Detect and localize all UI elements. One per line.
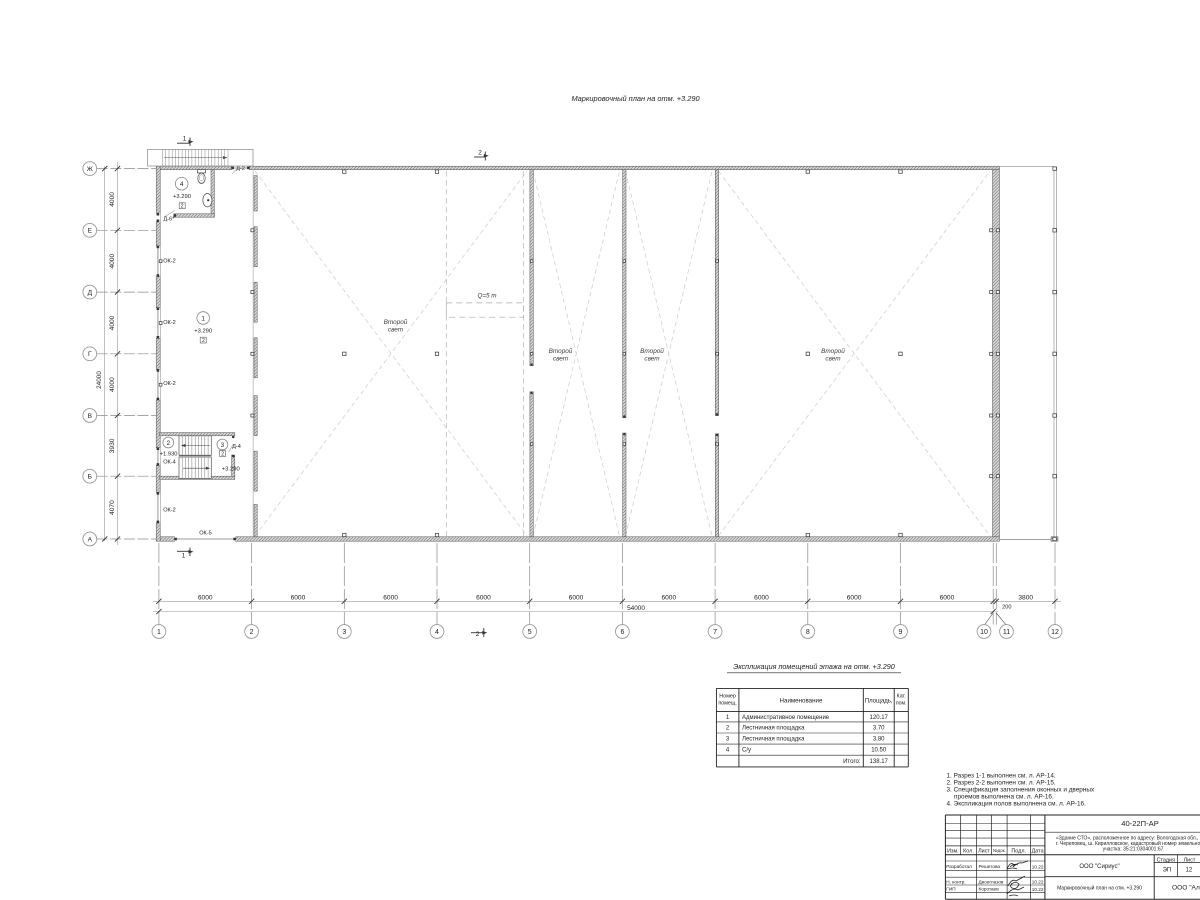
svg-text:ОК-2: ОК-2 [163, 381, 176, 387]
svg-text:2: 2 [221, 452, 224, 458]
svg-text:3: 3 [221, 442, 225, 449]
svg-text:Г: Г [88, 351, 92, 358]
svg-text:12: 12 [1186, 868, 1193, 874]
svg-text:Кол.: Кол. [963, 848, 974, 854]
svg-text:6000: 6000 [940, 595, 955, 602]
svg-text:4000: 4000 [109, 377, 116, 392]
svg-text:6000: 6000 [476, 595, 491, 602]
svg-text:Ж: Ж [87, 166, 93, 173]
svg-text:Второй: Второй [640, 347, 664, 355]
svg-text:ЭП: ЭП [1163, 868, 1172, 874]
svg-text:9: 9 [899, 629, 903, 636]
svg-text:Д-6*: Д-6* [164, 217, 176, 223]
svg-text:Административное помещение: Административное помещение [742, 715, 830, 721]
svg-text:Номер: Номер [719, 694, 736, 700]
svg-text:6000: 6000 [198, 595, 213, 602]
svg-text:4: 4 [435, 629, 439, 636]
svg-text:7: 7 [713, 629, 717, 636]
svg-text:4000: 4000 [109, 192, 116, 207]
svg-text:Экспликация помещений этажа на: Экспликация помещений этажа на отм. +3.2… [733, 662, 895, 671]
svg-text:6000: 6000 [291, 595, 306, 602]
svg-text:Д-4: Д-4 [232, 444, 241, 450]
svg-text:№док.: №док. [993, 848, 1006, 853]
svg-text:2. Разрез 2-2 выполнен см. л.: 2. Разрез 2-2 выполнен см. л. АР-15. [947, 780, 1056, 787]
svg-text:6000: 6000 [569, 595, 584, 602]
svg-text:4. Экспликация полов выполнена: 4. Экспликация полов выполнена см. л. АР… [947, 801, 1087, 808]
svg-text:Д-2: Д-2 [236, 166, 245, 172]
svg-text:ОК-2: ОК-2 [163, 258, 176, 264]
svg-text:3: 3 [342, 629, 346, 636]
svg-text:свет: свет [553, 356, 569, 363]
svg-text:138.17: 138.17 [870, 759, 889, 765]
svg-text:Лист: Лист [1184, 857, 1196, 863]
svg-text:Кат.: Кат. [897, 694, 906, 700]
svg-text:Д: Д [88, 289, 93, 296]
svg-text:свет: свет [825, 356, 841, 363]
svg-text:3.70: 3.70 [873, 726, 885, 732]
svg-text:Второй: Второй [549, 347, 573, 355]
svg-text:В: В [88, 413, 93, 420]
svg-text:12: 12 [1051, 629, 1059, 636]
svg-text:24000: 24000 [96, 371, 103, 389]
svg-text:ГИП: ГИП [946, 887, 955, 892]
svg-text:6: 6 [620, 629, 624, 636]
svg-text:Лестничная площадка: Лестничная площадка [742, 726, 805, 732]
svg-text:Q=5 т: Q=5 т [477, 292, 496, 299]
svg-text:ОК-4: ОК-4 [163, 460, 176, 466]
svg-text:10.50: 10.50 [871, 748, 887, 754]
svg-text:+3.290: +3.290 [194, 329, 212, 335]
svg-text:2: 2 [181, 204, 184, 210]
svg-text:участка: 35:21:0304001:67: участка: 35:21:0304001:67 [1103, 847, 1164, 853]
svg-text:Второй: Второй [821, 347, 845, 355]
svg-text:10.22: 10.22 [1032, 880, 1044, 885]
svg-text:пом.: пом. [896, 701, 907, 707]
svg-text:10: 10 [980, 629, 988, 636]
svg-text:ОК-2: ОК-2 [163, 508, 176, 514]
svg-text:3800: 3800 [1018, 595, 1033, 602]
svg-text:Разработал: Разработал [946, 864, 972, 869]
svg-text:Наименование: Наименование [780, 697, 823, 704]
svg-text:2: 2 [478, 150, 482, 157]
svg-text:ООО "Сириус": ООО "Сириус" [1079, 864, 1119, 870]
svg-text:+3.290: +3.290 [222, 466, 240, 472]
svg-text:Изм.: Изм. [947, 848, 959, 854]
svg-text:Второй: Второй [384, 318, 408, 326]
svg-text:40-22П-АР: 40-22П-АР [1121, 819, 1159, 828]
svg-text:2: 2 [250, 629, 254, 636]
svg-text:Маркировочный план на отм. +3.: Маркировочный план на отм. +3.290 [571, 94, 700, 103]
svg-text:Лист: Лист [978, 848, 990, 854]
svg-text:А: А [88, 536, 93, 543]
svg-text:1. Разрез 1-1 выполнен см. л.: 1. Разрез 1-1 выполнен см. л. АР-14. [947, 773, 1056, 780]
svg-text:2: 2 [202, 338, 205, 344]
svg-text:2: 2 [476, 631, 480, 638]
svg-text:3. Спецификация заполнения око: 3. Спецификация заполнения оконных и две… [947, 787, 1095, 794]
svg-text:3.80: 3.80 [873, 737, 885, 743]
svg-text:4070: 4070 [109, 500, 116, 515]
svg-text:200: 200 [1002, 604, 1011, 610]
svg-text:Стадия: Стадия [1157, 857, 1175, 863]
svg-text:проемов выполнена см. л. АР-16: проемов выполнена см. л. АР-16. [954, 794, 1054, 801]
svg-text:ООО "Альянс": ООО "Альянс" [1172, 885, 1200, 892]
svg-text:10.22: 10.22 [1032, 887, 1044, 892]
svg-text:120.17: 120.17 [870, 715, 889, 721]
svg-text:2: 2 [167, 440, 171, 447]
svg-text:ОК-2: ОК-2 [163, 320, 176, 326]
svg-text:1: 1 [157, 629, 161, 636]
svg-text:54000: 54000 [627, 605, 645, 612]
svg-text:Коротаев: Коротаев [979, 887, 1000, 892]
svg-text:1: 1 [182, 553, 186, 560]
svg-text:3930: 3930 [109, 438, 116, 453]
svg-text:свет: свет [644, 356, 660, 363]
svg-text:Н. контр.: Н. контр. [946, 879, 965, 884]
svg-text:4000: 4000 [109, 254, 116, 269]
svg-text:Б: Б [88, 474, 92, 481]
svg-text:6000: 6000 [754, 595, 769, 602]
svg-text:1: 1 [183, 136, 187, 143]
svg-text:свет: свет [388, 327, 404, 334]
svg-text:С/у: С/у [742, 748, 751, 754]
svg-text:Площадь,: Площадь, [865, 698, 893, 704]
svg-text:6000: 6000 [383, 595, 398, 602]
svg-text:Е: Е [88, 228, 93, 235]
svg-text:4000: 4000 [109, 315, 116, 330]
svg-text:Дата: Дата [1032, 848, 1044, 854]
svg-text:Маркировочный план на отм. +3.: Маркировочный план на отм. +3.290 [1057, 884, 1142, 891]
svg-text:помещ.: помещ. [718, 701, 737, 707]
svg-text:10.22: 10.22 [1032, 864, 1044, 869]
svg-text:+3.290: +3.290 [173, 194, 191, 200]
svg-text:ОК-5: ОК-5 [199, 531, 212, 537]
svg-text:11: 11 [1003, 629, 1010, 636]
svg-text:Двоеглазов: Двоеглазов [979, 879, 1004, 884]
svg-text:Решетова: Решетова [979, 864, 1001, 869]
svg-text:Лестничная площадка: Лестничная площадка [742, 737, 805, 743]
svg-text:1: 1 [201, 315, 205, 322]
svg-text:8: 8 [806, 629, 810, 636]
svg-text:Итого:: Итого: [843, 759, 861, 765]
svg-text:4: 4 [180, 181, 184, 188]
svg-text:+1.930: +1.930 [160, 452, 178, 458]
svg-text:Подл.: Подл. [1011, 848, 1026, 854]
svg-text:5: 5 [528, 629, 532, 636]
svg-text:6000: 6000 [661, 595, 676, 602]
svg-text:6000: 6000 [847, 595, 862, 602]
